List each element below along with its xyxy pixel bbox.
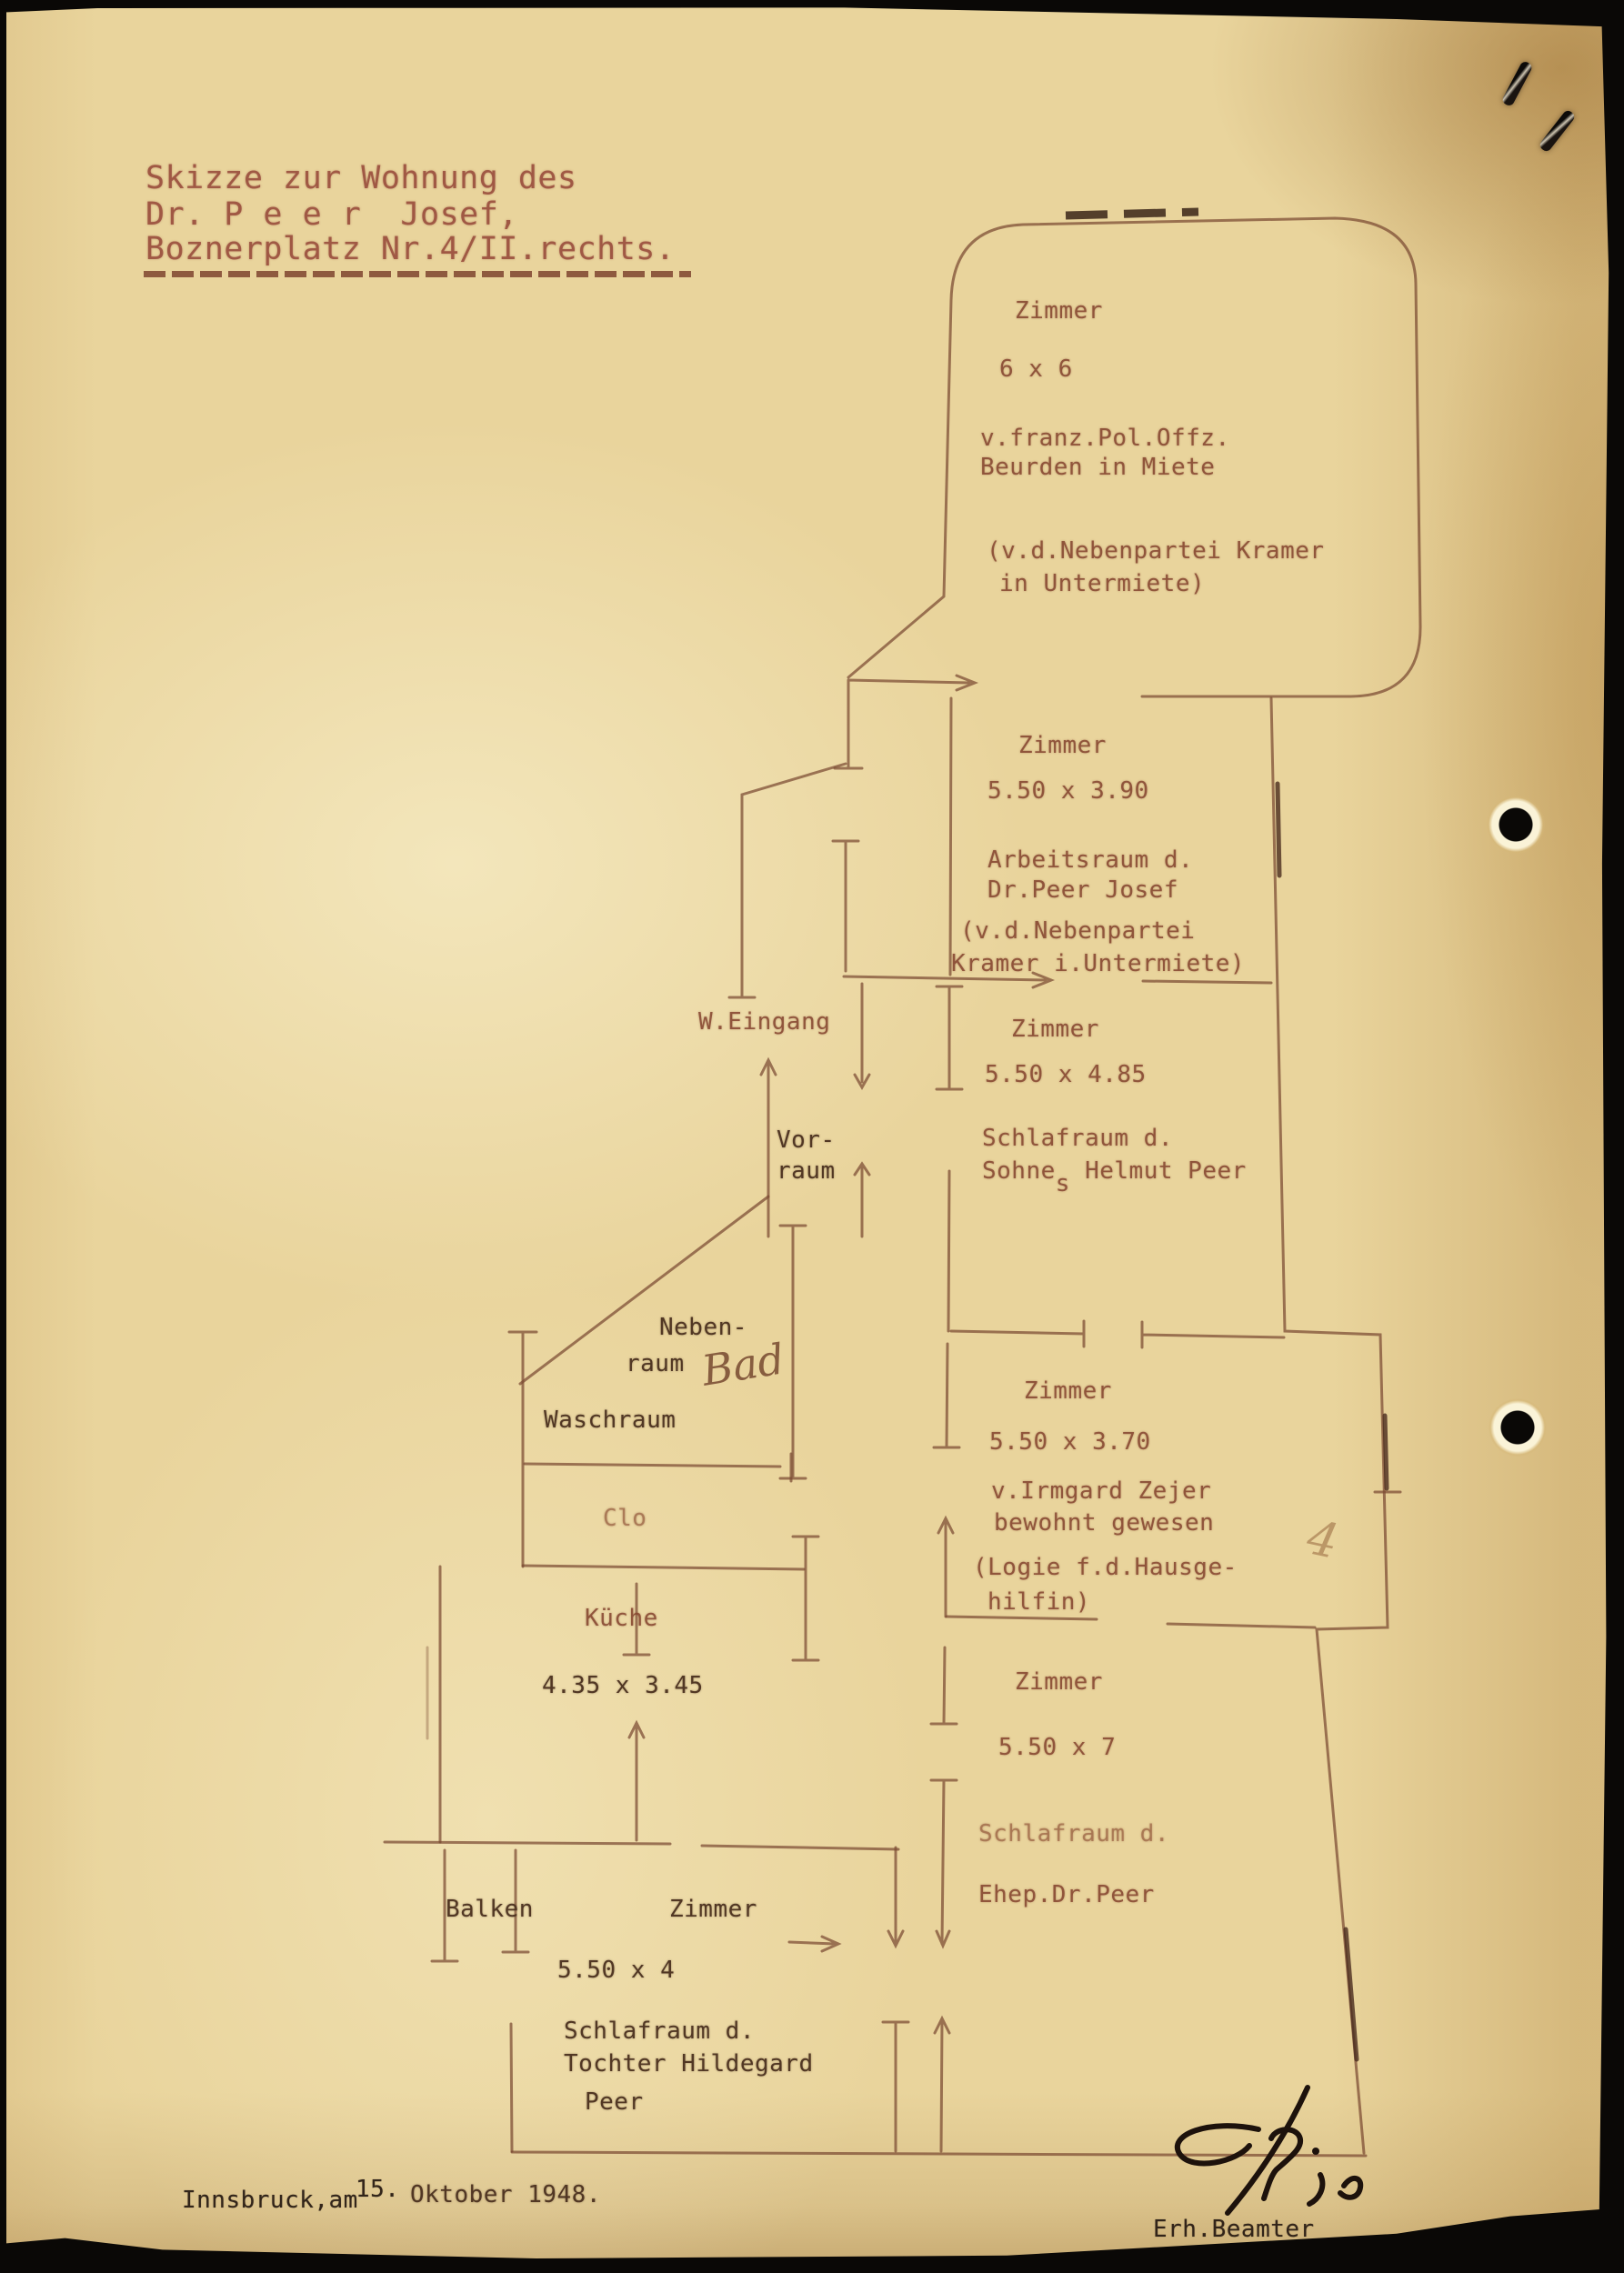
room-390-sub2: Kramer i.Untermiete) [951,949,1245,979]
room-4-name: Zimmer [669,1895,757,1925]
room-485-name: Zimmer [1011,1015,1099,1045]
scanned-document-page: Skizze zur Wohnung des Dr. P e e r Josef… [0,0,1624,2273]
header-underline [144,271,691,277]
nebenraum-line2: raum [626,1349,685,1379]
room-390-use1: Arbeitsraum d. [987,846,1193,876]
room-4-use3: Peer [585,2088,644,2118]
room-7-use2: Ehep.Dr.Peer [978,1880,1155,1910]
room-big-size: 6 x 6 [999,355,1073,385]
room-485-use2-subscript: s [1056,1170,1070,1197]
walls-group [385,212,1420,2156]
room-485-size: 5.50 x 4.85 [985,1060,1147,1090]
wall-top-dark-dashes [1066,212,1198,215]
scan-edge-left [0,0,6,2273]
vorraum-line2: raum [777,1157,836,1187]
punch-hole-bottom [1489,1398,1547,1457]
room-big-tenant2: Beurden in Miete [980,453,1215,483]
footer-monthyear: Oktober 1948. [410,2180,601,2210]
kueche-size: 4.35 x 3.45 [542,1671,704,1701]
footer-place: Innsbruck,am [182,2186,358,2216]
window-mark [1278,784,1279,876]
room-390-size: 5.50 x 3.90 [987,776,1149,806]
room-370-size: 5.50 x 3.70 [989,1427,1151,1457]
room-4-size: 5.50 x 4 [557,1956,675,1986]
doc-title-line1: Skizze zur Wohnung des [145,160,577,196]
kueche-name: Küche [585,1604,658,1634]
window-mark [1385,1416,1387,1488]
waschraum-label: Waschraum [544,1406,676,1436]
room-7-size: 5.50 x 7 [998,1733,1116,1763]
entrance-label: W.Eingang [698,1007,830,1037]
room-big-tenant1: v.franz.Pol.Offz. [980,424,1230,454]
doc-title-line2: Dr. P e e r Josef, [145,196,518,233]
room-4-use2: Tochter Hildegard [564,2049,814,2079]
room-485-use2b: Helmut Peer [1070,1157,1247,1185]
clo-label: Clo [603,1504,647,1534]
room-big-sub1: (v.d.Nebenpartei Kramer [987,536,1325,566]
room-370-sub2: hilfin) [987,1587,1090,1617]
room-485-use2: Sohnes Helmut Peer [982,1157,1247,1187]
room-390-use2: Dr.Peer Josef [987,876,1178,906]
room-7-name: Zimmer [1015,1667,1103,1697]
room-390-sub1: (v.d.Nebenpartei [960,916,1195,946]
room-big-sub2: in Untermiete) [999,569,1205,599]
nebenraum-line1: Neben- [659,1313,747,1343]
room-390-name: Zimmer [1018,731,1107,761]
room-485-use1: Schlafraum d. [982,1124,1173,1154]
balkon-label: Balken [446,1895,534,1925]
room-370-sub1: (Logie f.d.Hausge- [973,1553,1238,1583]
punch-hole-top [1487,796,1545,854]
room-370-use2: bewohnt gewesen [994,1508,1214,1538]
window-mark [1346,1929,1357,2059]
room-370-use1: v.Irmgard Zejer [991,1477,1211,1507]
room-485-use2a: Sohne [982,1157,1056,1185]
room-370-name: Zimmer [1024,1377,1112,1407]
vorraum-line1: Vor- [777,1126,836,1156]
room-4-use1: Schlafraum d. [564,2017,755,2047]
doc-title-line3: Boznerplatz Nr.4/II.rechts. [145,231,675,267]
room-7-use1: Schlafraum d. [978,1819,1169,1849]
room-big-name: Zimmer [1015,296,1103,326]
